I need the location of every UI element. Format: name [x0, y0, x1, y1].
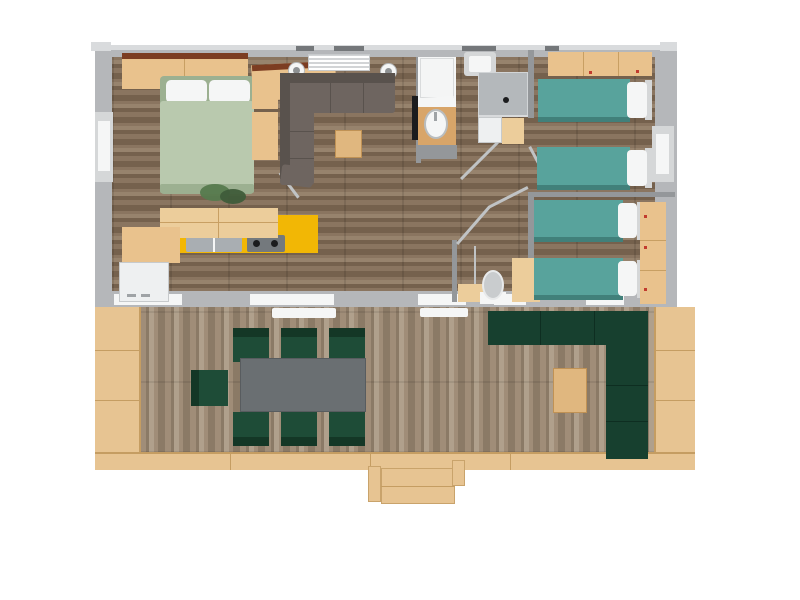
step-post-left: [368, 466, 381, 502]
washbasin-faucet: [434, 112, 437, 121]
dining-chair-bottom-1: [233, 412, 269, 437]
cabinet-over-fridge: [122, 227, 180, 263]
partition-bedrooms-divider: [528, 192, 675, 197]
roof-vent-2: [334, 46, 364, 51]
lounge-sofa-right-seam2: [606, 421, 648, 422]
deck-rail-seam-right-1: [655, 350, 695, 351]
wardrobe-bedroomB-handle1: [644, 215, 647, 218]
single-bed-1: [538, 79, 630, 122]
roof-vent-1: [296, 46, 314, 51]
deck-rail-seam-bottom-1: [230, 454, 231, 470]
right-window-pane: [656, 134, 669, 174]
roof-vent-4: [545, 46, 559, 51]
wardrobe-bedroomB-handle2: [644, 246, 647, 249]
fridge-handle: [127, 294, 136, 297]
wall-ac-unit: [308, 54, 370, 71]
dining-chair-bottom-3: [329, 412, 365, 437]
sofa-seam-2: [363, 83, 364, 113]
left-window-pane: [98, 121, 110, 171]
partition-bedroomA-left: [528, 50, 534, 118]
wardrobe-bedroomB-seam1: [640, 240, 666, 241]
toilet-bowl: [482, 270, 504, 300]
wardrobe-bedroomB-seam2: [640, 270, 666, 271]
door-threshold-1: [272, 308, 336, 318]
fridge-handle-2: [141, 294, 150, 297]
bay-window-2: [250, 294, 334, 305]
single-bed-1-pillow: [627, 82, 647, 118]
master-bed-duvet: [160, 101, 254, 189]
bath-cabinet-white: [478, 117, 502, 143]
kitchen-bar-seam-2: [218, 208, 219, 238]
stove-burner-right: [271, 240, 278, 247]
kitchen-sink-divider: [213, 236, 215, 252]
wardrobe-bedroomA-handle2: [636, 70, 639, 73]
dining-chair-bottom-2-back: [281, 437, 317, 446]
dining-chair-top-3-back: [329, 328, 365, 337]
deck-rail-inner-edge-left: [139, 307, 141, 453]
lounge-sofa-right-seam1: [606, 385, 648, 386]
unit-roof-edge-highlight: [95, 45, 677, 50]
unit-corner-cap-right: [660, 42, 677, 51]
sofa-seam-4: [290, 158, 314, 159]
single-bed-3: [534, 200, 623, 242]
skylight-bathroom-pane: [469, 56, 491, 72]
dining-chair-top-1-back: [233, 328, 269, 337]
kitchen-bar-seam: [160, 222, 278, 223]
roof-vent-3: [462, 46, 496, 51]
floorplan-image: [0, 0, 800, 600]
floorplan-scene: [0, 0, 800, 600]
single-bed-3-pillow: [618, 203, 637, 238]
single-bed-4-edge: [534, 295, 623, 300]
single-bed-1-edge: [538, 117, 630, 122]
single-bed-3-edge: [534, 237, 623, 242]
single-bed-2-edge: [537, 185, 630, 190]
dining-chair-bottom-2: [281, 412, 317, 437]
lounge-sofa-top: [488, 311, 648, 345]
deck-rail-seam-left-1: [95, 350, 140, 351]
single-bed-2-pillow: [627, 150, 647, 186]
dining-chair-end-back: [191, 370, 199, 406]
step-platform-seam: [381, 486, 455, 487]
dining-table: [240, 358, 366, 412]
dining-chair-bottom-3-back: [329, 437, 365, 446]
shower-cabin: [420, 58, 454, 98]
stove-burner-left: [253, 240, 260, 247]
wardrobe-bedroomA-seam2: [618, 52, 619, 76]
unit-corner-cap-left: [91, 42, 111, 51]
sofa-back-top: [280, 73, 395, 83]
deck-rail-inner-edge-right: [654, 307, 656, 453]
wardrobe-bedroomB-handle3: [644, 288, 647, 291]
master-bed-pillow-left: [166, 80, 207, 103]
sofa-seam-3: [290, 131, 314, 132]
lounge-sofa-top-seam2: [594, 311, 595, 345]
bathroom-base-dark: [417, 145, 457, 159]
lounge-side-table: [553, 368, 587, 413]
deck-rail-seam-left-2: [95, 400, 140, 401]
dresser-upper: [252, 72, 278, 109]
lounge-sofa-right: [606, 345, 648, 459]
wardrobe-bedroomA-handle1: [589, 71, 592, 74]
single-bed-2: [537, 147, 630, 190]
bath-stool-wood: [502, 118, 524, 144]
lounge-sofa-top-seam1: [540, 311, 541, 345]
dining-chair-end: [199, 370, 228, 406]
deck-rail-inner-edge-bottom: [95, 452, 695, 454]
dining-chair-top-2-back: [281, 328, 317, 337]
shower2-drain: [503, 97, 509, 103]
deck-rail-seam-bottom-3: [510, 454, 511, 470]
shower2-pan: [478, 72, 528, 117]
deck-rail-seam-right-2: [655, 400, 695, 401]
step-post-right: [452, 460, 465, 486]
sofa-chaise-end: [280, 164, 314, 188]
dresser-lower: [252, 112, 278, 160]
single-bed-4: [534, 258, 623, 300]
master-bed-pillow-right: [209, 80, 250, 103]
plant-2: [220, 189, 246, 204]
dining-chair-bottom-1-back: [233, 437, 269, 446]
coffee-table: [335, 130, 362, 158]
single-bed-4-pillow: [618, 261, 637, 296]
wc-wall-left: [452, 240, 457, 302]
wardrobe-headboard-left-edge: [122, 53, 248, 59]
door-threshold-2: [420, 308, 468, 317]
wardrobe-bedroomA-seam1: [583, 52, 584, 76]
sofa-seam-1: [330, 83, 331, 113]
